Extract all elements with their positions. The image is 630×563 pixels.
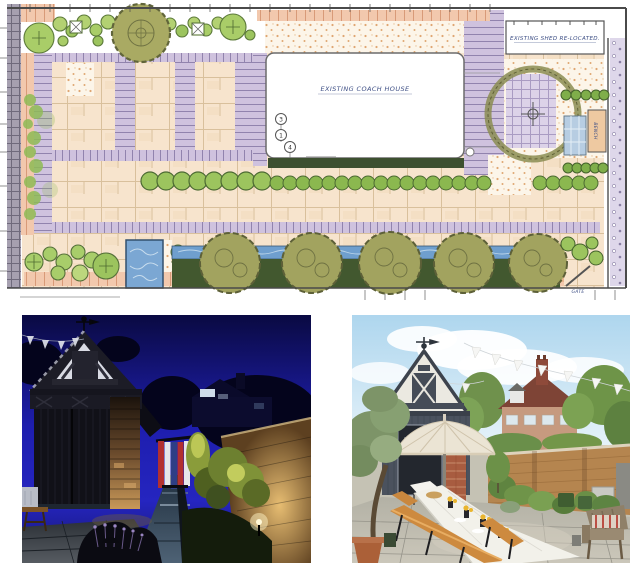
- callout-4: 4: [288, 145, 292, 152]
- day-photo-svg: [352, 315, 630, 563]
- masterplan-drawing: EXISTING COACH HOUSE 3 1 4 EXISTING SHED…: [0, 0, 630, 308]
- brick-pier: [110, 397, 140, 509]
- shed-footprint: EXISTING SHED RE-LOCATED.: [506, 21, 604, 54]
- coach-house-label: EXISTING COACH HOUSE: [320, 85, 410, 93]
- night-photo-svg: [22, 315, 311, 563]
- bench-seat: [22, 507, 48, 512]
- night-garden-photo: [22, 315, 311, 563]
- shed-label: EXISTING SHED RE-LOCATED.: [510, 36, 600, 42]
- specimen-tree-top: [112, 4, 170, 62]
- bunting-flags: [156, 437, 192, 489]
- gate-label: GATE: [572, 289, 585, 295]
- day-garden-photo: [352, 315, 630, 563]
- masterplan-svg: EXISTING COACH HOUSE 3 1 4 EXISTING SHED…: [0, 0, 630, 308]
- white-table: [22, 487, 38, 508]
- garden-design-collage: EXISTING COACH HOUSE 3 1 4 EXISTING SHED…: [0, 0, 630, 563]
- bench-label: BENCH: [592, 122, 598, 139]
- callout-1: 1: [279, 133, 283, 140]
- pebble-passage: [608, 8, 626, 288]
- lit-window: [200, 389, 215, 397]
- callout-3: 3: [279, 117, 283, 124]
